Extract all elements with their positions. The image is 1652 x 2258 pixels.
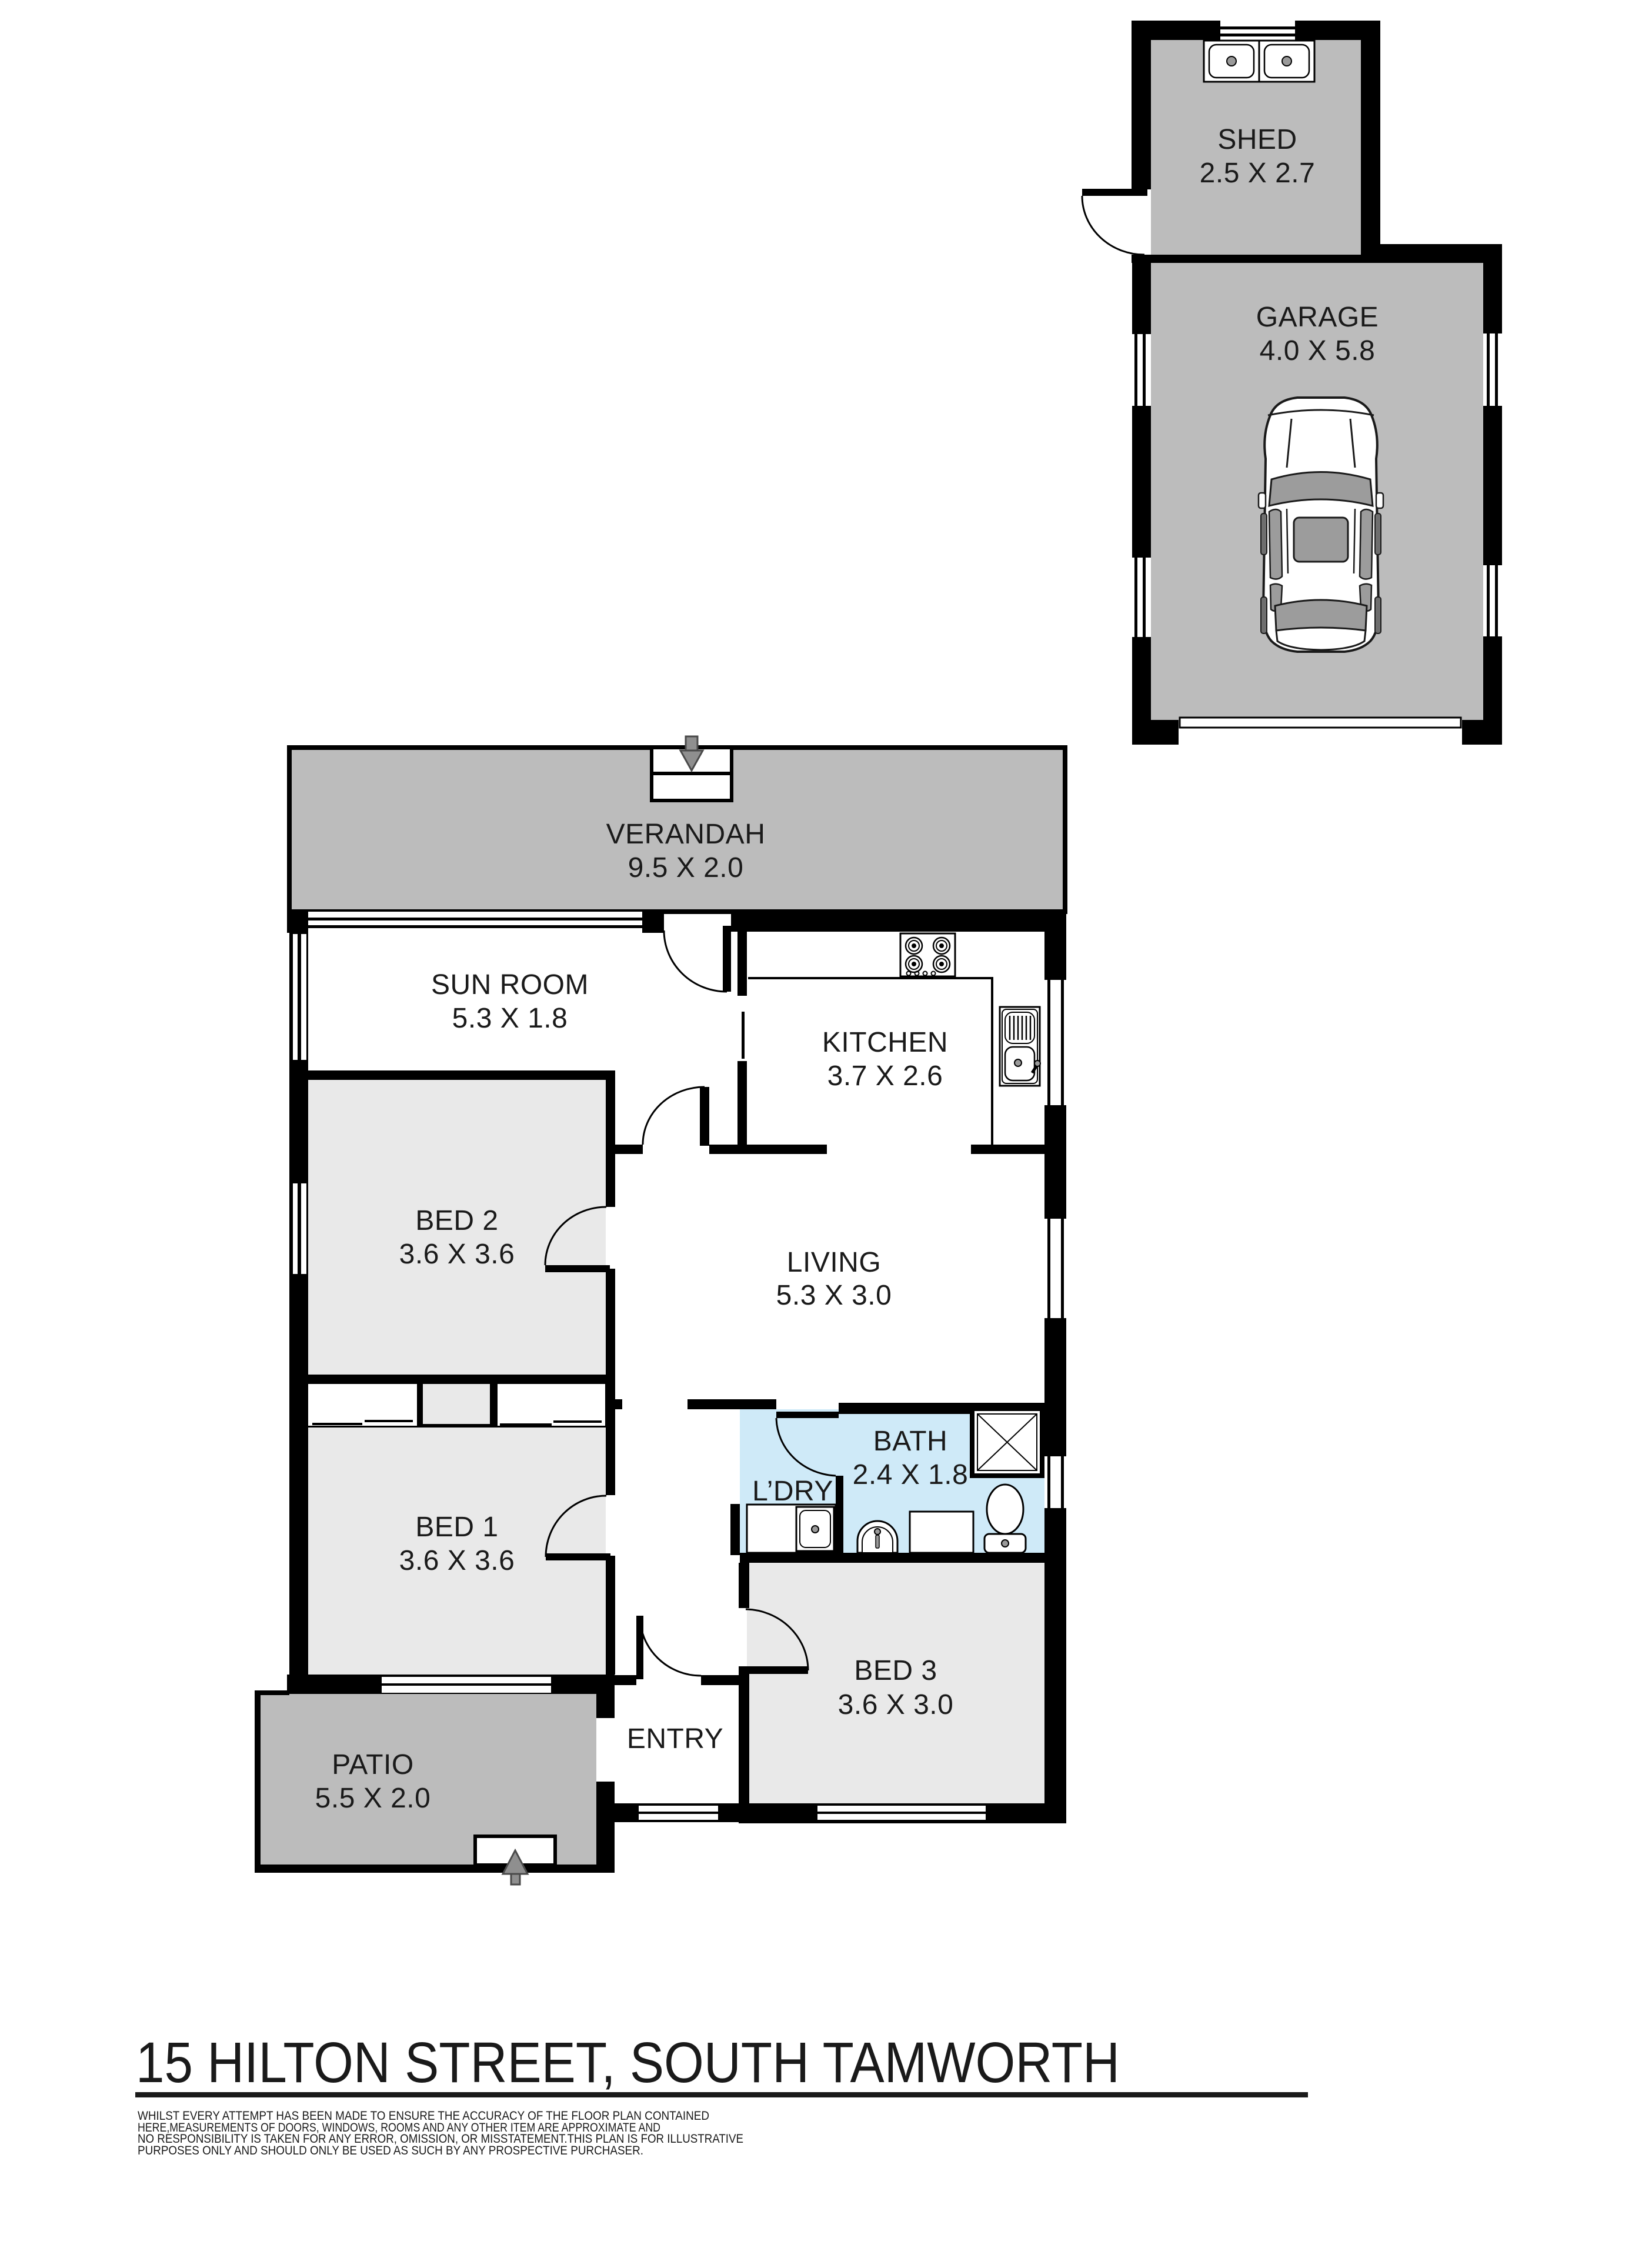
svg-text:L’DRY: L’DRY <box>752 1476 833 1507</box>
svg-text:2.5 X 2.7: 2.5 X 2.7 <box>1200 158 1316 189</box>
svg-text:VERANDAH: VERANDAH <box>606 819 766 850</box>
svg-text:SUN ROOM: SUN ROOM <box>431 969 589 1000</box>
svg-text:ENTRY: ENTRY <box>627 1723 723 1755</box>
svg-text:BED 1: BED 1 <box>415 1512 498 1543</box>
svg-text:PATIO: PATIO <box>332 1749 413 1780</box>
svg-text:BATH: BATH <box>873 1426 947 1457</box>
svg-text:SHED: SHED <box>1217 124 1297 155</box>
svg-text:KITCHEN: KITCHEN <box>822 1027 948 1058</box>
svg-text:5.5 X 2.0: 5.5 X 2.0 <box>315 1783 431 1814</box>
svg-text:2.4 X 1.8: 2.4 X 1.8 <box>853 1459 969 1490</box>
svg-text:GARAGE: GARAGE <box>1256 302 1379 333</box>
svg-text:15 HILTON STREET, SOUTH TAMWOR: 15 HILTON STREET, SOUTH TAMWORTH <box>136 2030 1120 2094</box>
svg-text:3.6 X 3.6: 3.6 X 3.6 <box>399 1545 515 1576</box>
svg-text:BED 2: BED 2 <box>415 1205 498 1236</box>
svg-text:5.3 X 1.8: 5.3 X 1.8 <box>452 1003 568 1034</box>
svg-text:LIVING: LIVING <box>787 1247 881 1278</box>
svg-text:3.6 X 3.6: 3.6 X 3.6 <box>399 1239 515 1270</box>
svg-text:3.6 X 3.0: 3.6 X 3.0 <box>838 1689 954 1720</box>
svg-text:5.3 X 3.0: 5.3 X 3.0 <box>776 1280 892 1311</box>
svg-text:9.5 X 2.0: 9.5 X 2.0 <box>628 852 744 883</box>
svg-text:PURPOSES ONLY AND SHOULD ONLY: PURPOSES ONLY AND SHOULD ONLY BE USED AS… <box>138 2144 643 2157</box>
svg-text:3.7 X 2.6: 3.7 X 2.6 <box>827 1060 943 1092</box>
svg-text:4.0 X 5.8: 4.0 X 5.8 <box>1260 335 1376 366</box>
svg-text:BED 3: BED 3 <box>854 1655 937 1686</box>
